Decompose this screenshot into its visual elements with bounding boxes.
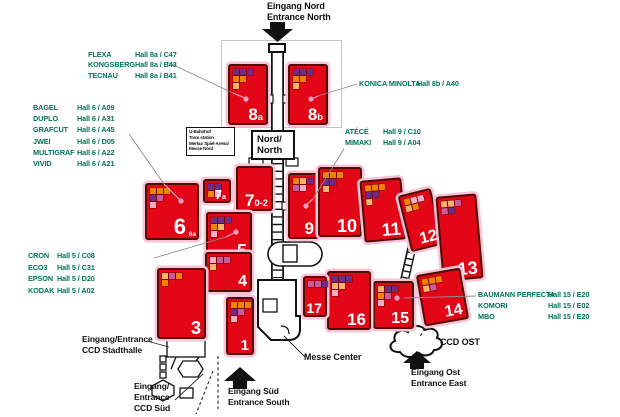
exhibitor-entry: JWEIHall 6 / D05 bbox=[33, 136, 115, 147]
label-line: Entrance South bbox=[228, 397, 289, 408]
exhibitor-location: Hall 6 / A31 bbox=[77, 113, 114, 124]
exhibitor-entry: ATÉCÉHall 9 / C10 bbox=[345, 126, 421, 137]
exhibitor-name: KODAK bbox=[28, 285, 57, 297]
exhibitor-name: JWEI bbox=[33, 136, 77, 147]
exhibitor-name: FLEXA bbox=[88, 50, 135, 60]
exhibitor-entry: KOMORIHall 15 / E02 bbox=[478, 300, 589, 311]
exhibitor-list-hall8b: KONICA MINOLTAHall 8b / A40 bbox=[359, 78, 459, 89]
exhibitor-entry: DUPLOHall 6 / A31 bbox=[33, 113, 115, 124]
exhibitor-location: Hall 8a / B41 bbox=[135, 71, 177, 81]
label-line: Eingang/ bbox=[134, 381, 170, 392]
label-line: Eingang Süd bbox=[228, 386, 289, 397]
label-line: Eingang Nord bbox=[267, 1, 331, 12]
exhibitor-location: Hall 5 / C08 bbox=[57, 250, 95, 262]
exhibitor-entry: BAGELHall 6 / A09 bbox=[33, 102, 115, 113]
exhibitor-list-hall5: CRONHall 5 / C08ECO3Hall 5 / C31EPSONHal… bbox=[28, 250, 95, 296]
entrance-east-label: Eingang Ost Entrance East bbox=[411, 367, 466, 389]
entrance-ccd-stadthalle-label: Eingang/Entrance CCD Stadthalle bbox=[82, 334, 153, 356]
exhibitor-entry: VIVIDHall 6 / A21 bbox=[33, 158, 115, 169]
exhibitor-entry: BAUMANN PERFECTAHall 15 / E20 bbox=[478, 289, 589, 300]
label-line: Entrance East bbox=[411, 378, 466, 389]
exhibitor-entry: TECNAUHall 8a / B41 bbox=[88, 71, 177, 81]
exhibitor-name: MBO bbox=[478, 311, 548, 322]
exhibitor-location: Hall 5 / D20 bbox=[57, 273, 95, 285]
exhibitor-name: VIVID bbox=[33, 158, 77, 169]
label-line: Eingang/Entrance bbox=[82, 334, 153, 345]
exhibitor-entry: ECO3Hall 5 / C31 bbox=[28, 262, 95, 274]
exhibitor-name: KONGSBERG bbox=[88, 60, 135, 70]
exhibitor-list-hall8a: FLEXAHall 8a / C47KONGSBERGHall 8a / B43… bbox=[88, 50, 177, 81]
label-line: Entrance bbox=[134, 392, 170, 403]
exhibitor-name: DUPLO bbox=[33, 113, 77, 124]
exhibitor-entry: EPSONHall 5 / D20 bbox=[28, 273, 95, 285]
exhibitor-name: BAGEL bbox=[33, 102, 77, 113]
label-line: CCD Stadthalle bbox=[82, 345, 153, 356]
exhibitor-location: Hall 9 / A04 bbox=[383, 137, 420, 148]
exhibitor-location: Hall 9 / C10 bbox=[383, 126, 421, 137]
exhibitor-location: Hall 6 / A22 bbox=[77, 147, 114, 158]
exhibitor-location: Hall 6 / A09 bbox=[77, 102, 114, 113]
exhibitor-name: TECNAU bbox=[88, 71, 135, 81]
exhibitor-list-hall6: BAGELHall 6 / A09DUPLOHall 6 / A31GRAFCU… bbox=[33, 102, 115, 169]
label-line: Entrance North bbox=[267, 12, 331, 23]
exhibitor-entry: CRONHall 5 / C08 bbox=[28, 250, 95, 262]
exhibitor-name: ECO3 bbox=[28, 262, 57, 274]
label-line: Eingang Ost bbox=[411, 367, 466, 378]
exhibitor-location: Hall 8a / B43 bbox=[135, 60, 177, 70]
callout-lines bbox=[129, 62, 476, 298]
exhibitor-name: GRAFCUT bbox=[33, 124, 77, 135]
exhibitor-location: Hall 5 / C31 bbox=[57, 262, 95, 274]
exhibitor-location: Hall 8a / C47 bbox=[135, 50, 177, 60]
exhibitor-location: Hall 15 / E20 bbox=[548, 289, 589, 300]
exhibitor-entry: FLEXAHall 8a / C47 bbox=[88, 50, 177, 60]
exhibitor-entry: KONICA MINOLTAHall 8b / A40 bbox=[359, 78, 459, 89]
exhibitor-location: Hall 6 / D05 bbox=[77, 136, 115, 147]
exhibitor-name: EPSON bbox=[28, 273, 57, 285]
messe-center-label: Messe Center bbox=[304, 352, 361, 363]
ccd-ost-label: CCD OST bbox=[440, 337, 480, 348]
exhibitor-location: Hall 5 / A02 bbox=[57, 285, 94, 297]
exhibitor-entry: MIMAKIHall 9 / A04 bbox=[345, 137, 421, 148]
entrance-north-label: Eingang Nord Entrance North bbox=[267, 1, 331, 23]
exhibitor-location: Hall 15 / E20 bbox=[548, 311, 589, 322]
exhibitor-entry: KODAKHall 5 / A02 bbox=[28, 285, 95, 297]
exhibitor-entry: MULTIGRAFHall 6 / A22 bbox=[33, 147, 115, 158]
callout-pointers bbox=[164, 93, 399, 300]
exhibitor-location: Hall 6 / A45 bbox=[77, 124, 114, 135]
entrance-south-label: Eingang Süd Entrance South bbox=[228, 386, 289, 408]
exhibitor-name: MIMAKI bbox=[345, 137, 383, 148]
exhibitor-entry: KONGSBERGHall 8a / B43 bbox=[88, 60, 177, 70]
exhibitor-name: KOMORI bbox=[478, 300, 548, 311]
exhibitor-list-hall9: ATÉCÉHall 9 / C10MIMAKIHall 9 / A04 bbox=[345, 126, 421, 148]
exhibitor-list-hall15: BAUMANN PERFECTAHall 15 / E20KOMORIHall … bbox=[478, 289, 589, 322]
exhibitor-name: ATÉCÉ bbox=[345, 126, 383, 137]
exhibitor-location: Hall 15 / E02 bbox=[548, 300, 589, 311]
exhibitor-name: BAUMANN PERFECTA bbox=[478, 289, 548, 300]
exhibitor-name: CRON bbox=[28, 250, 57, 262]
exhibitor-location: Hall 6 / A21 bbox=[77, 158, 114, 169]
exhibitor-entry: GRAFCUTHall 6 / A45 bbox=[33, 124, 115, 135]
entrance-ccd-sued-label: Eingang/ Entrance CCD Süd bbox=[134, 381, 170, 414]
messe-fairground-map: 8a8b6a67a70-2543191011121314151617 U-Bah… bbox=[0, 0, 620, 417]
exhibitor-name: MULTIGRAF bbox=[33, 147, 77, 158]
exhibitor-entry: MBOHall 15 / E20 bbox=[478, 311, 589, 322]
label-line: CCD Süd bbox=[134, 403, 170, 414]
exhibitor-name: KONICA MINOLTA bbox=[359, 78, 417, 89]
exhibitor-location: Hall 8b / A40 bbox=[417, 78, 459, 89]
